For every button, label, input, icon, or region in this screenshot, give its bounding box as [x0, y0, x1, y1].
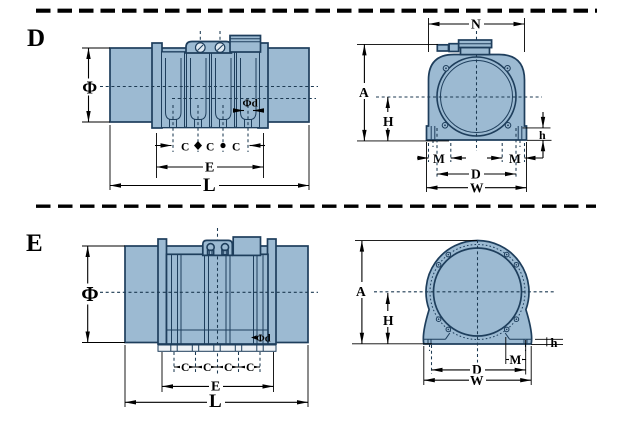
svg-text:Φ: Φ — [82, 77, 97, 97]
svg-text:C: C — [181, 142, 189, 154]
svg-text:E: E — [26, 230, 43, 257]
svg-text:L: L — [203, 175, 216, 196]
svg-text:W: W — [470, 373, 484, 388]
svg-text:L: L — [209, 391, 222, 412]
svg-text:Φd: Φd — [256, 334, 271, 345]
svg-text:D: D — [471, 167, 481, 182]
svg-text:H: H — [383, 313, 394, 328]
svg-text:A: A — [356, 284, 366, 299]
svg-text:h: h — [539, 128, 546, 142]
svg-text:E: E — [205, 161, 214, 176]
svg-text:C: C — [181, 362, 189, 374]
svg-text:D: D — [27, 25, 45, 52]
svg-text:M: M — [433, 152, 445, 166]
svg-text:C: C — [246, 362, 254, 374]
svg-text:C: C — [206, 142, 214, 154]
svg-text:M: M — [510, 353, 522, 367]
svg-text:C: C — [203, 362, 211, 374]
svg-text:Φd: Φd — [243, 98, 258, 110]
svg-text:C: C — [224, 362, 232, 374]
svg-text:A: A — [359, 85, 369, 100]
svg-text:Φ: Φ — [81, 282, 98, 306]
svg-text:N: N — [471, 17, 481, 32]
svg-text:h: h — [551, 336, 558, 350]
svg-text:W: W — [470, 181, 484, 196]
svg-text:H: H — [383, 114, 394, 129]
svg-text:C: C — [232, 142, 240, 154]
svg-text:M: M — [509, 152, 521, 166]
